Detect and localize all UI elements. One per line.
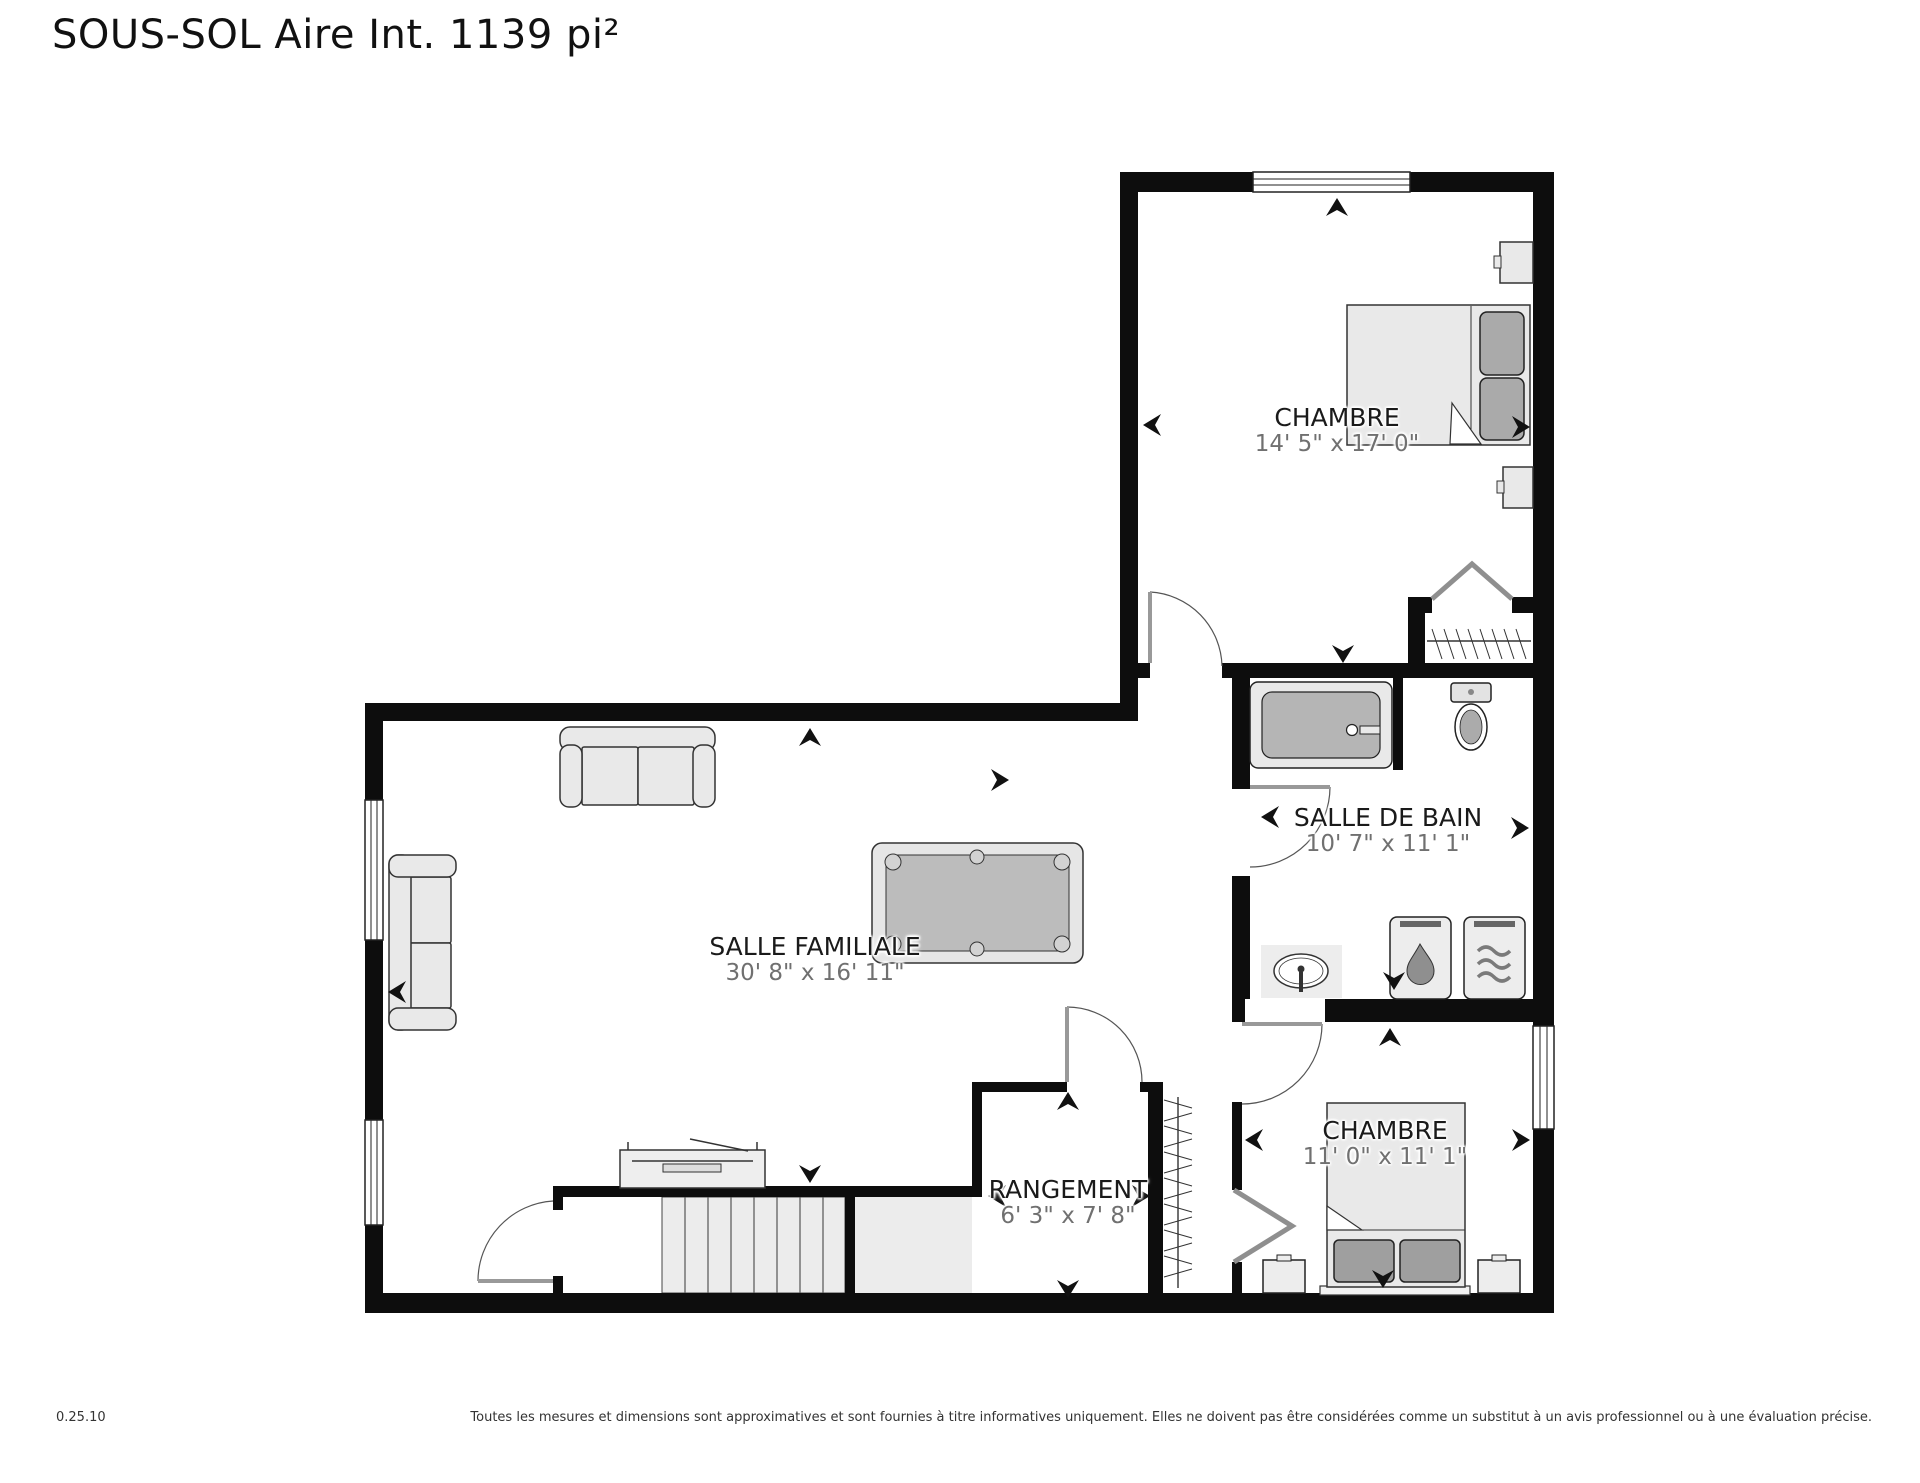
room-label-salle-familiale: SALLE FAMILIALE 30' 8" x 16' 11" xyxy=(709,933,920,986)
door-rangement xyxy=(1067,1007,1142,1082)
arrow-left-icon xyxy=(1261,806,1279,828)
pillow xyxy=(1400,1240,1460,1282)
stairs xyxy=(662,1197,972,1293)
room-dimensions: 30' 8" x 16' 11" xyxy=(709,960,920,986)
room-dimensions: 10' 7" x 11' 1" xyxy=(1294,831,1482,857)
toilet xyxy=(1451,683,1491,750)
room-label-chambre-1: CHAMBRE 14' 5" x 17' 0" xyxy=(1255,404,1419,457)
window-left-upper xyxy=(365,800,383,940)
room-name: CHAMBRE xyxy=(1303,1117,1467,1144)
sofa-left xyxy=(389,855,456,1030)
tub-drain xyxy=(1347,725,1358,736)
room-dimensions: 6' 3" x 7' 8" xyxy=(989,1203,1148,1229)
bifold-door-closet-2 xyxy=(1234,1190,1292,1262)
arrow-left-icon xyxy=(1245,1129,1263,1151)
sink-vanity xyxy=(1261,945,1342,998)
arrow-up-icon xyxy=(1379,1028,1401,1046)
room-name: SALLE DE BAIN xyxy=(1294,804,1482,831)
room-label-chambre-2: CHAMBRE 11' 0" x 11' 1" xyxy=(1303,1117,1467,1170)
floor-plan-drawing xyxy=(0,0,1920,1483)
room-dimensions: 14' 5" x 17' 0" xyxy=(1255,431,1419,457)
window-left-lower xyxy=(365,1120,383,1225)
window-right-lower xyxy=(1533,1026,1554,1129)
version-label: 0.25.10 xyxy=(56,1410,106,1425)
furnace xyxy=(1464,917,1525,999)
piano xyxy=(620,1139,765,1188)
tub-faucet xyxy=(1360,726,1380,734)
arrow-up-icon xyxy=(799,728,821,746)
arrow-right-icon xyxy=(991,769,1009,791)
water-heater xyxy=(1390,917,1451,999)
arrow-up-icon xyxy=(1326,198,1348,216)
room-label-rangement: RANGEMENT 6' 3" x 7' 8" xyxy=(989,1176,1148,1229)
bifold-door-closet-1 xyxy=(1432,564,1512,599)
room-name: SALLE FAMILIALE xyxy=(709,933,920,960)
faucet xyxy=(1298,966,1305,973)
closet-rail-chambre-2 xyxy=(1164,1097,1192,1288)
door-chambre-2 xyxy=(1242,1024,1322,1104)
closet-rail-chambre-1 xyxy=(1427,629,1531,659)
room-name: CHAMBRE xyxy=(1255,404,1419,431)
room-label-salle-de-bain: SALLE DE BAIN 10' 7" x 11' 1" xyxy=(1294,804,1482,857)
room-dimensions: 11' 0" x 11' 1" xyxy=(1303,1144,1467,1170)
arrow-down-icon xyxy=(1332,645,1354,663)
arrow-left-icon xyxy=(1143,414,1161,436)
room-name: RANGEMENT xyxy=(989,1176,1148,1203)
window-bedroom-top xyxy=(1253,172,1410,192)
arrow-right-icon xyxy=(1511,817,1529,839)
footer: 0.25.10 Toutes les mesures et dimensions… xyxy=(0,1406,1920,1430)
disclaimer-text: Toutes les mesures et dimensions sont ap… xyxy=(470,1410,1872,1425)
pillow xyxy=(1480,312,1524,375)
bathtub xyxy=(1250,682,1392,768)
door-chambre-1 xyxy=(1150,592,1222,666)
arrow-down-icon xyxy=(799,1165,821,1183)
door-family-room-sw xyxy=(478,1201,553,1281)
arrow-up-icon xyxy=(1057,1092,1079,1110)
arrow-right-icon xyxy=(1512,1129,1530,1151)
floor-plan-page: SOUS-SOL Aire Int. 1139 pi² xyxy=(0,0,1920,1483)
sofa-top xyxy=(560,727,715,807)
